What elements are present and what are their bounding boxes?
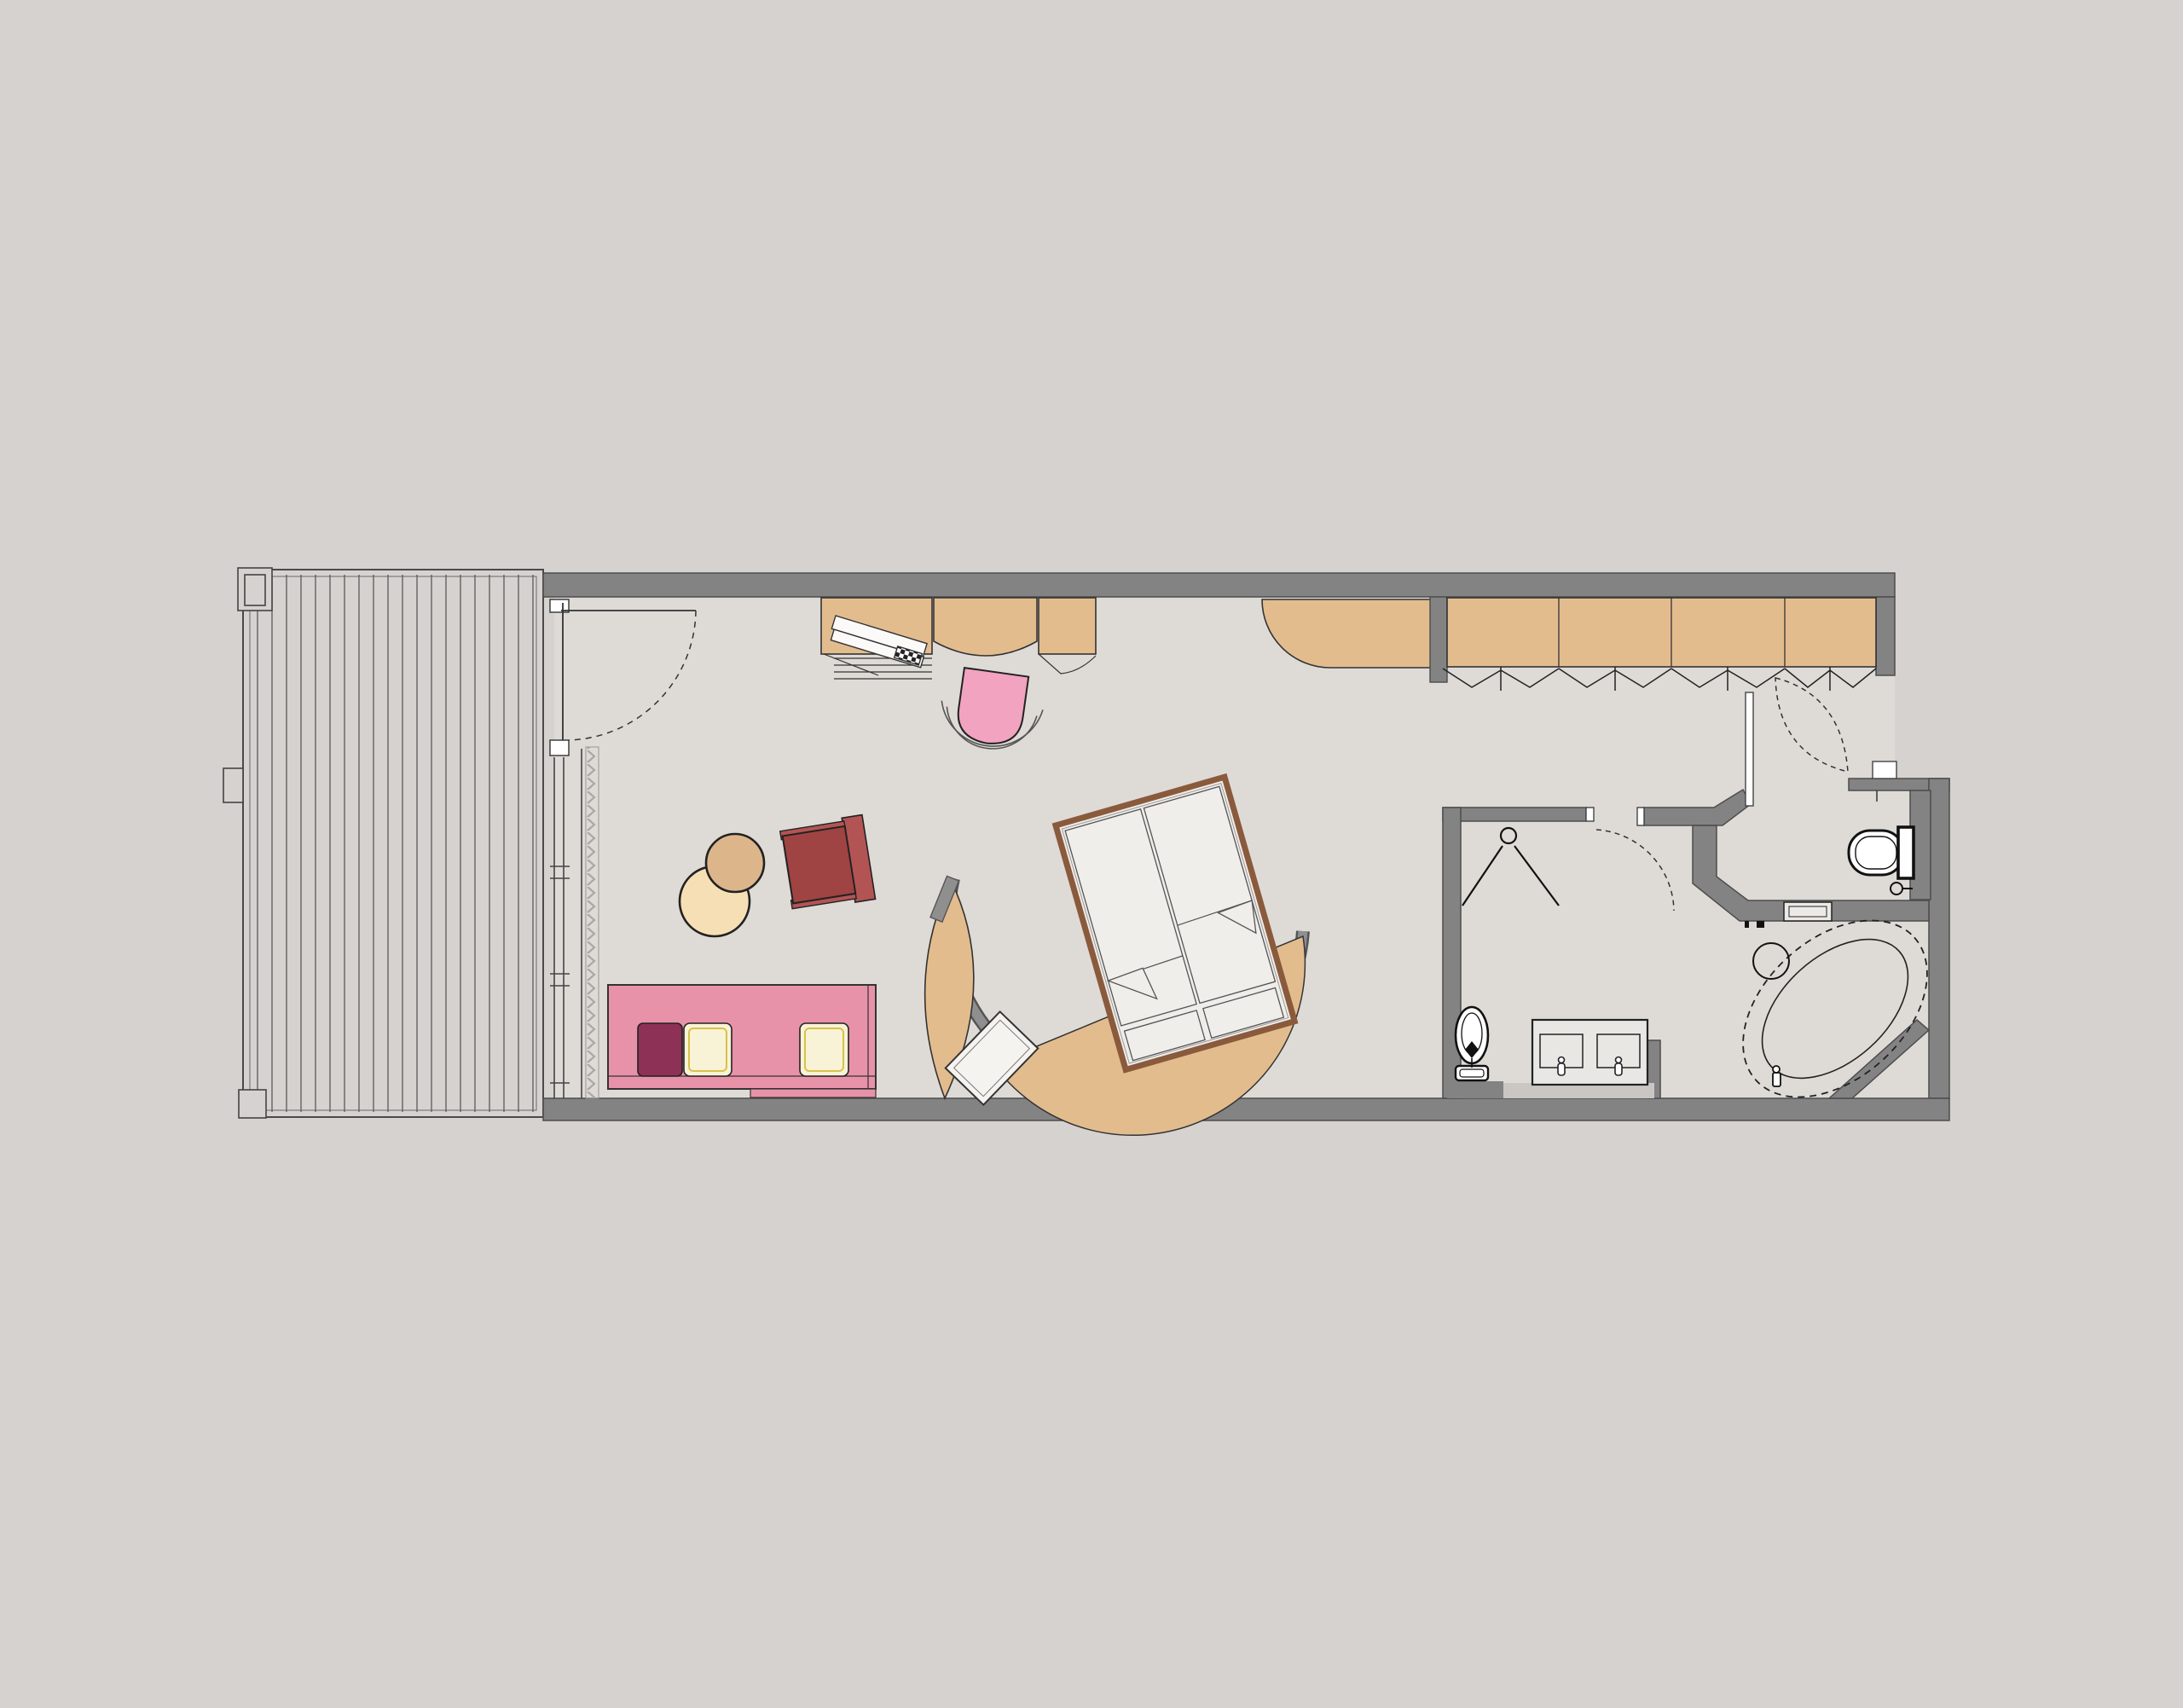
double-vanity bbox=[1532, 1020, 1647, 1085]
terrace-border bbox=[243, 570, 543, 1117]
wall-bath-left bbox=[1443, 808, 1461, 1098]
wall-bath-top bbox=[1443, 808, 1586, 821]
floor-plan-canvas bbox=[0, 0, 2183, 1708]
tub-faucet bbox=[1773, 1066, 1781, 1086]
faucet-right bbox=[1615, 1057, 1622, 1076]
glass-partition bbox=[1746, 692, 1753, 806]
wall-right-pier bbox=[1876, 597, 1895, 675]
ledge-bidet bbox=[1447, 1081, 1503, 1098]
toilet bbox=[1849, 827, 1914, 878]
pillow-cream-1 bbox=[684, 1023, 732, 1076]
wall-bottom bbox=[543, 1098, 1949, 1120]
desk-cabinet-right bbox=[1039, 598, 1096, 654]
wall-top bbox=[543, 573, 1895, 597]
armchair bbox=[779, 815, 875, 912]
sofa bbox=[608, 985, 876, 1097]
shelf bbox=[1784, 902, 1832, 921]
faucet-left bbox=[1558, 1057, 1565, 1076]
deck-boards bbox=[258, 575, 533, 1112]
terrace bbox=[223, 568, 543, 1118]
desk-curved-front bbox=[934, 598, 1037, 656]
side-table-small bbox=[706, 834, 764, 892]
bidet bbox=[1456, 1007, 1488, 1080]
jamb-bath-door bbox=[1586, 808, 1594, 821]
floor-plan-drawing bbox=[0, 0, 2183, 1708]
pillow-cream-2 bbox=[800, 1023, 848, 1076]
terrace-posts bbox=[223, 568, 272, 1118]
wall-right-outer bbox=[1929, 779, 1949, 1098]
toilet-cistern bbox=[1898, 827, 1914, 878]
jamb-entry bbox=[1873, 761, 1896, 779]
sofa-chaise-edge bbox=[750, 1089, 876, 1097]
pillow-magenta bbox=[638, 1023, 682, 1076]
jamb-vestibule bbox=[1637, 808, 1644, 825]
